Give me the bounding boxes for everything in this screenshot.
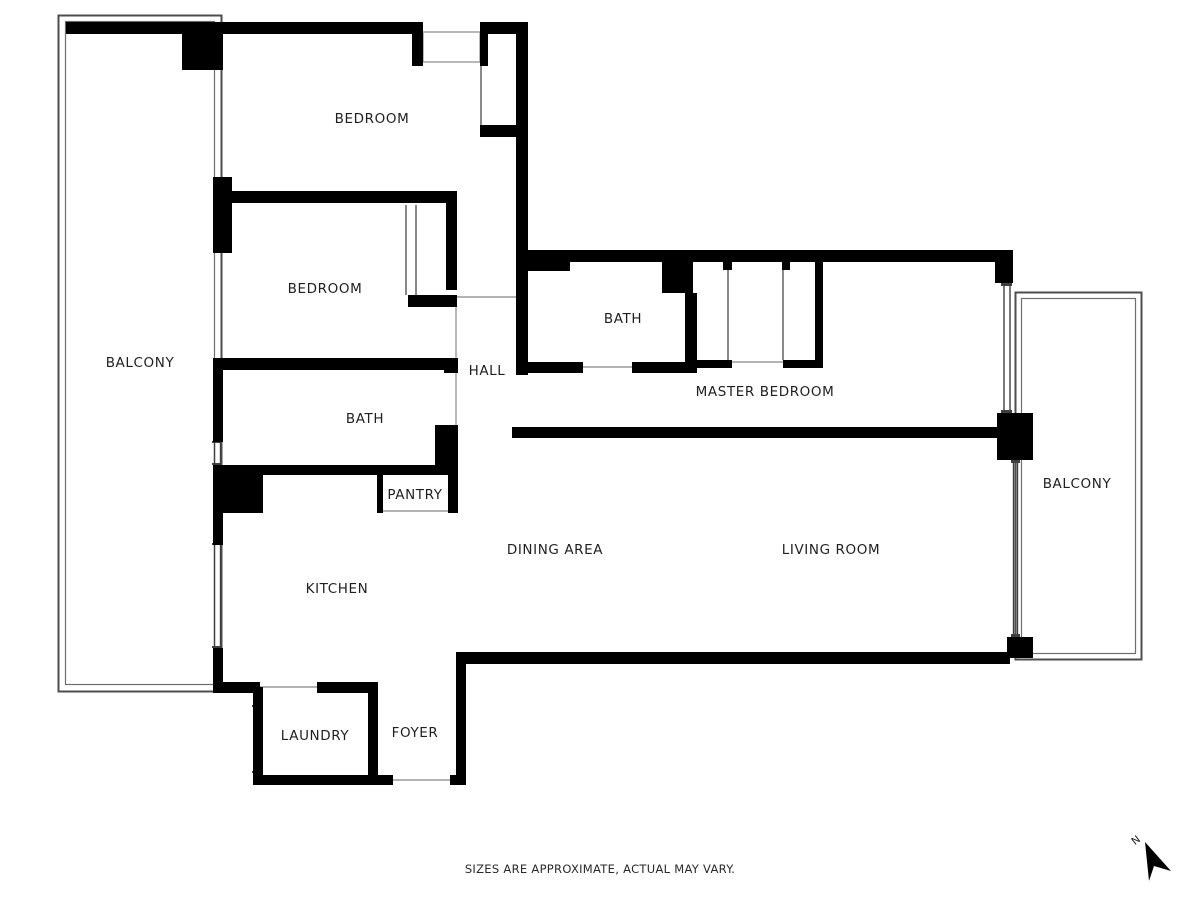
wall-bath-master [523,262,570,271]
wall-corner-block [997,413,1033,460]
floor-plan-svg: BEDROOM BEDROOM BALCONY BATH HALL MASTER… [0,0,1200,900]
wall-closet-stub [480,125,516,137]
wall-bath-master-bottom [518,362,583,373]
window-sill [212,646,222,648]
wall-bath-master-bottom [632,362,697,373]
wall-pantry-right [448,465,458,513]
wall-left [213,513,223,545]
wall-bedroom-right [516,22,528,375]
wall-block [182,34,223,70]
floor-plan-page: BEDROOM BEDROOM BALCONY BATH HALL MASTER… [0,0,1200,900]
wall-bath-master-right [685,293,697,373]
wall-kitchen-bottom [213,682,260,693]
window-sill [212,463,222,465]
room-label-foyer: FOYER [392,725,439,741]
wall-foyer-right [456,652,466,785]
wall-closet-stub [697,360,732,368]
room-label-balcony-right: BALCONY [1043,476,1112,492]
room-label-balcony-left: BALCONY [106,355,175,371]
wall-kitchen-block [213,466,263,513]
wall-closet-stub [408,295,457,307]
wall-living-bottom [456,652,1010,664]
wall-post [412,22,423,66]
window-sill [1011,460,1020,463]
wall-laundry-bottom [253,775,378,785]
wall-block [435,425,458,465]
balcony-left-outline [59,16,222,692]
wall-laundry-right [368,682,378,785]
wall-post [480,22,488,66]
bedroom-top-door [423,32,480,62]
wall-post-left [213,177,232,253]
wall-pantry-left [377,465,383,513]
walls [66,22,1033,785]
wall-laundry-top [317,682,373,693]
window-sill [1001,410,1012,413]
north-compass: N [1129,833,1171,881]
wall-closet-post [723,262,732,270]
room-label-bedroom-mid: BEDROOM [288,281,363,297]
room-label-bath-master: BATH [604,311,642,327]
wall-master-bottom [512,427,997,438]
room-label-hall: HALL [469,363,506,379]
wall-corner-block [995,250,1013,283]
window-sill [1011,634,1020,637]
north-label: N [1129,833,1143,847]
window-sill [1001,283,1012,286]
room-label-dining: DINING AREA [507,542,603,558]
room-label-bedroom-top: BEDROOM [335,111,410,127]
wall-closet [815,252,823,368]
room-label-laundry: LAUNDRY [281,728,350,744]
wall-laundry-left [253,687,263,785]
wall-bedroom-mid-right [446,191,457,290]
wall-bath-master-block [662,262,693,293]
wall-left [213,358,223,442]
wall-corner-block [1007,637,1033,658]
north-arrow-icon [1145,842,1171,881]
wall-bath2-top [213,358,458,370]
room-label-bath-second: BATH [346,411,384,427]
wall-bedroom-divider [227,191,455,203]
windows [212,283,1020,773]
disclaimer-text: SIZES ARE APPROXIMATE, ACTUAL MAY VARY. [465,862,735,876]
balcony-left-outer-rail [59,16,222,692]
room-label-living: LIVING ROOM [782,542,880,558]
wall-closet-post [782,262,790,270]
wall-hall-stub [512,427,527,438]
wall-top [66,22,412,34]
wall-master-top [517,250,1013,262]
wall-foyer-stub [368,775,393,785]
room-label-pantry: PANTRY [387,487,442,503]
room-label-kitchen: KITCHEN [306,581,369,597]
room-label-master-bedroom: MASTER BEDROOM [696,384,835,400]
balcony-left-inner-rail [66,22,215,685]
